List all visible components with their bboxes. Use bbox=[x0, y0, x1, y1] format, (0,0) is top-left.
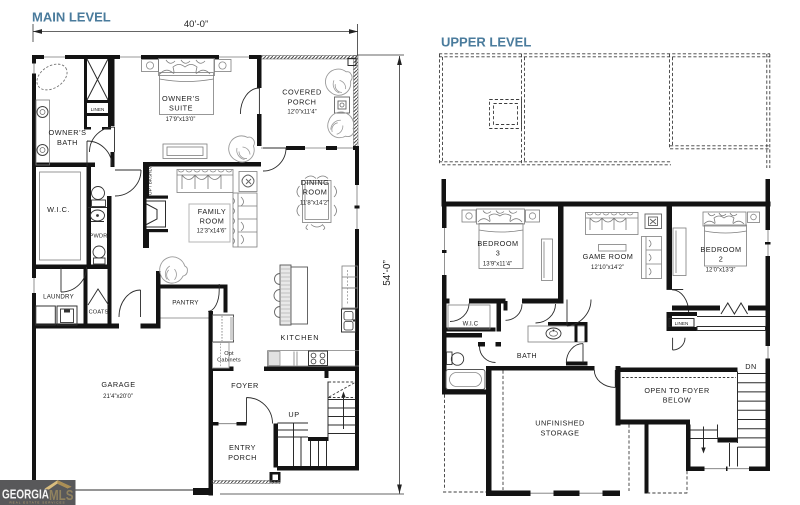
svg-text:LINEN: LINEN bbox=[675, 321, 689, 326]
svg-text:BATH: BATH bbox=[517, 353, 537, 360]
svg-text:GEORGIA: GEORGIA bbox=[2, 488, 49, 502]
svg-text:3: 3 bbox=[496, 249, 501, 258]
svg-text:BEDROOM: BEDROOM bbox=[477, 239, 518, 248]
svg-text:40’-0”: 40’-0” bbox=[184, 19, 208, 30]
svg-text:17’9”x13’0”: 17’9”x13’0” bbox=[166, 117, 196, 123]
svg-text:OPT BKSHLVS: OPT BKSHLVS bbox=[148, 163, 153, 195]
svg-text:Cabinets: Cabinets bbox=[217, 358, 241, 364]
svg-text:BEDROOM: BEDROOM bbox=[700, 245, 741, 254]
svg-text:OWNER’S: OWNER’S bbox=[49, 128, 87, 137]
svg-text:STORAGE: STORAGE bbox=[540, 429, 579, 438]
svg-text:W.I.C: W.I.C bbox=[463, 322, 479, 328]
svg-text:BELOW: BELOW bbox=[663, 396, 691, 405]
svg-text:REAL ESTATE SERVICES: REAL ESTATE SERVICES bbox=[10, 501, 66, 505]
svg-text:LAUNDRY: LAUNDRY bbox=[43, 294, 74, 301]
svg-text:ROOM: ROOM bbox=[200, 217, 225, 226]
svg-text:21’4”x20’0”: 21’4”x20’0” bbox=[103, 394, 133, 400]
svg-text:UNFINISHED: UNFINISHED bbox=[535, 419, 585, 428]
svg-text:GAME ROOM: GAME ROOM bbox=[583, 252, 634, 261]
svg-text:12’0”x13’3”: 12’0”x13’3” bbox=[706, 268, 736, 274]
svg-text:DINING: DINING bbox=[301, 178, 330, 187]
svg-text:MAIN LEVEL: MAIN LEVEL bbox=[32, 10, 111, 25]
svg-text:PORCH: PORCH bbox=[228, 453, 257, 462]
svg-text:2: 2 bbox=[719, 255, 724, 264]
svg-text:SUITE: SUITE bbox=[169, 104, 193, 113]
svg-text:COATS: COATS bbox=[89, 310, 109, 316]
svg-text:11’8”x14’2”: 11’8”x14’2” bbox=[300, 201, 329, 207]
svg-text:OPEN TO FOYER: OPEN TO FOYER bbox=[644, 386, 709, 395]
svg-text:W.I.C.: W.I.C. bbox=[47, 205, 70, 214]
svg-text:PANTRY: PANTRY bbox=[172, 300, 199, 307]
svg-text:LINEN: LINEN bbox=[91, 107, 105, 112]
svg-text:ROOM: ROOM bbox=[303, 188, 328, 197]
svg-text:COVERED: COVERED bbox=[282, 88, 322, 97]
svg-text:BATH: BATH bbox=[57, 138, 78, 147]
svg-text:13’9”x11’4”: 13’9”x11’4” bbox=[483, 262, 512, 268]
svg-text:GARAGE: GARAGE bbox=[101, 380, 135, 389]
svg-text:UPPER LEVEL: UPPER LEVEL bbox=[441, 35, 531, 50]
svg-text:12’10”x14’2”: 12’10”x14’2” bbox=[591, 265, 624, 271]
svg-text:FAMILY: FAMILY bbox=[198, 207, 226, 216]
svg-text:ENTRY: ENTRY bbox=[229, 443, 256, 452]
svg-text:UP: UP bbox=[288, 410, 299, 419]
svg-text:PWDR: PWDR bbox=[90, 234, 108, 240]
svg-text:12’0”x11’4”: 12’0”x11’4” bbox=[287, 110, 316, 116]
svg-text:54’-0”: 54’-0” bbox=[382, 260, 393, 286]
svg-text:OWNER’S: OWNER’S bbox=[162, 94, 200, 103]
svg-text:PORCH: PORCH bbox=[288, 98, 317, 107]
svg-text:FOYER: FOYER bbox=[231, 381, 259, 390]
svg-text:Opt: Opt bbox=[224, 351, 234, 357]
svg-text:12’3”x14’6”: 12’3”x14’6” bbox=[197, 229, 227, 235]
svg-text:KITCHEN: KITCHEN bbox=[280, 333, 319, 342]
svg-text:DN: DN bbox=[745, 362, 757, 371]
